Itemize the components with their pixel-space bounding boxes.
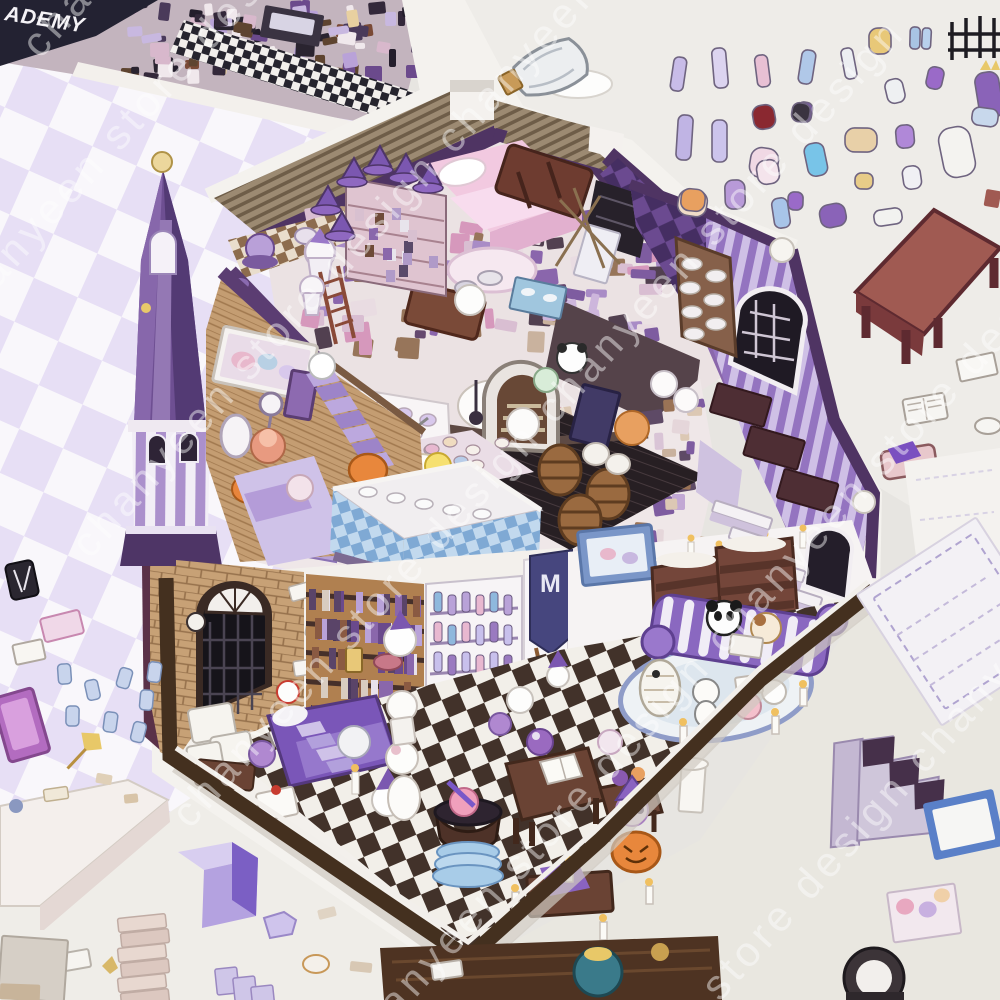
svg-text:M: M: [540, 570, 561, 598]
